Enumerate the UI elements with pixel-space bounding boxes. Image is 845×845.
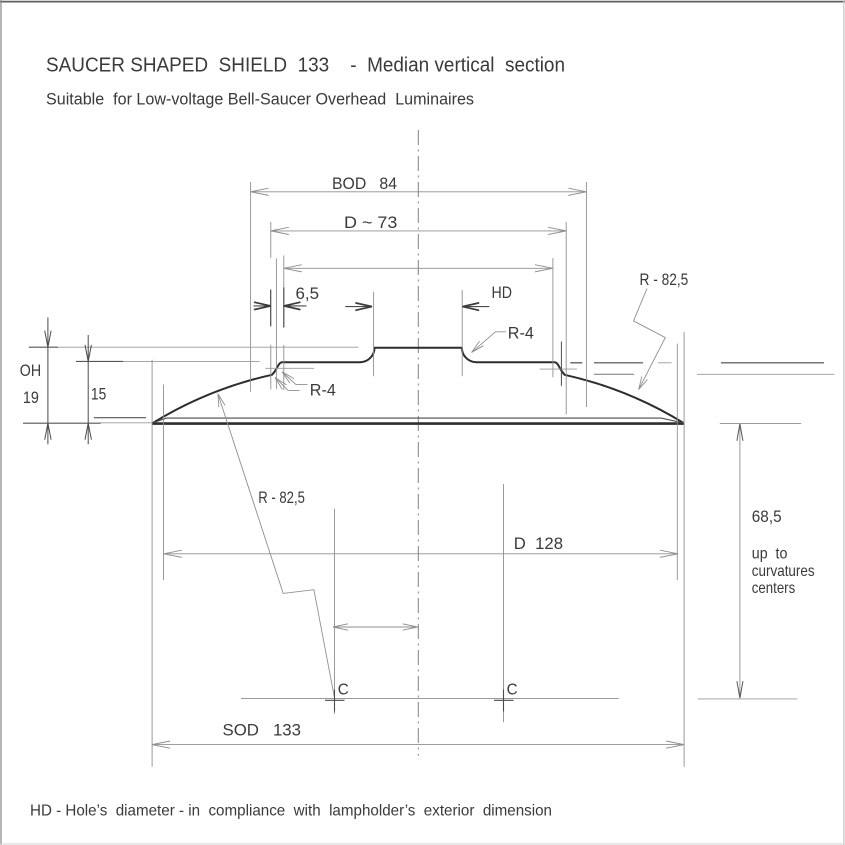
svg-text:R - 82,5: R - 82,5 — [258, 488, 305, 507]
svg-text:6,5: 6,5 — [296, 284, 320, 303]
svg-text:C: C — [338, 682, 349, 699]
svg-text:68,5: 68,5 — [752, 507, 782, 526]
svg-text:C: C — [507, 682, 518, 699]
svg-text:R-4: R-4 — [310, 380, 336, 399]
svg-text:BOD 84: BOD 84 — [332, 174, 397, 193]
svg-text:curvatures: curvatures — [752, 563, 815, 580]
svg-text:D ~ 73: D ~ 73 — [344, 213, 397, 232]
svg-text:centers: centers — [752, 580, 795, 597]
svg-text:R-4: R-4 — [508, 323, 534, 342]
svg-text:up to: up to — [752, 546, 788, 563]
svg-text:HD - Hole’s diameter - in co: HD - Hole’s diameter - in compliance wit… — [30, 803, 552, 820]
svg-text:Suitable for Low-voltage Bell: Suitable for Low-voltage Bell-Saucer Ove… — [46, 91, 474, 109]
svg-text:OH: OH — [20, 361, 41, 380]
svg-text:SAUCER SHAPED SHIELD 133: SAUCER SHAPED SHIELD 133 - Median vertic… — [46, 55, 565, 77]
svg-text:15: 15 — [91, 385, 106, 404]
svg-text:SOD 133: SOD 133 — [223, 720, 302, 739]
svg-text:R - 82,5: R - 82,5 — [640, 270, 689, 289]
svg-text:D 128: D 128 — [514, 534, 563, 553]
svg-text:19: 19 — [23, 388, 39, 407]
svg-text:HD: HD — [492, 283, 513, 302]
